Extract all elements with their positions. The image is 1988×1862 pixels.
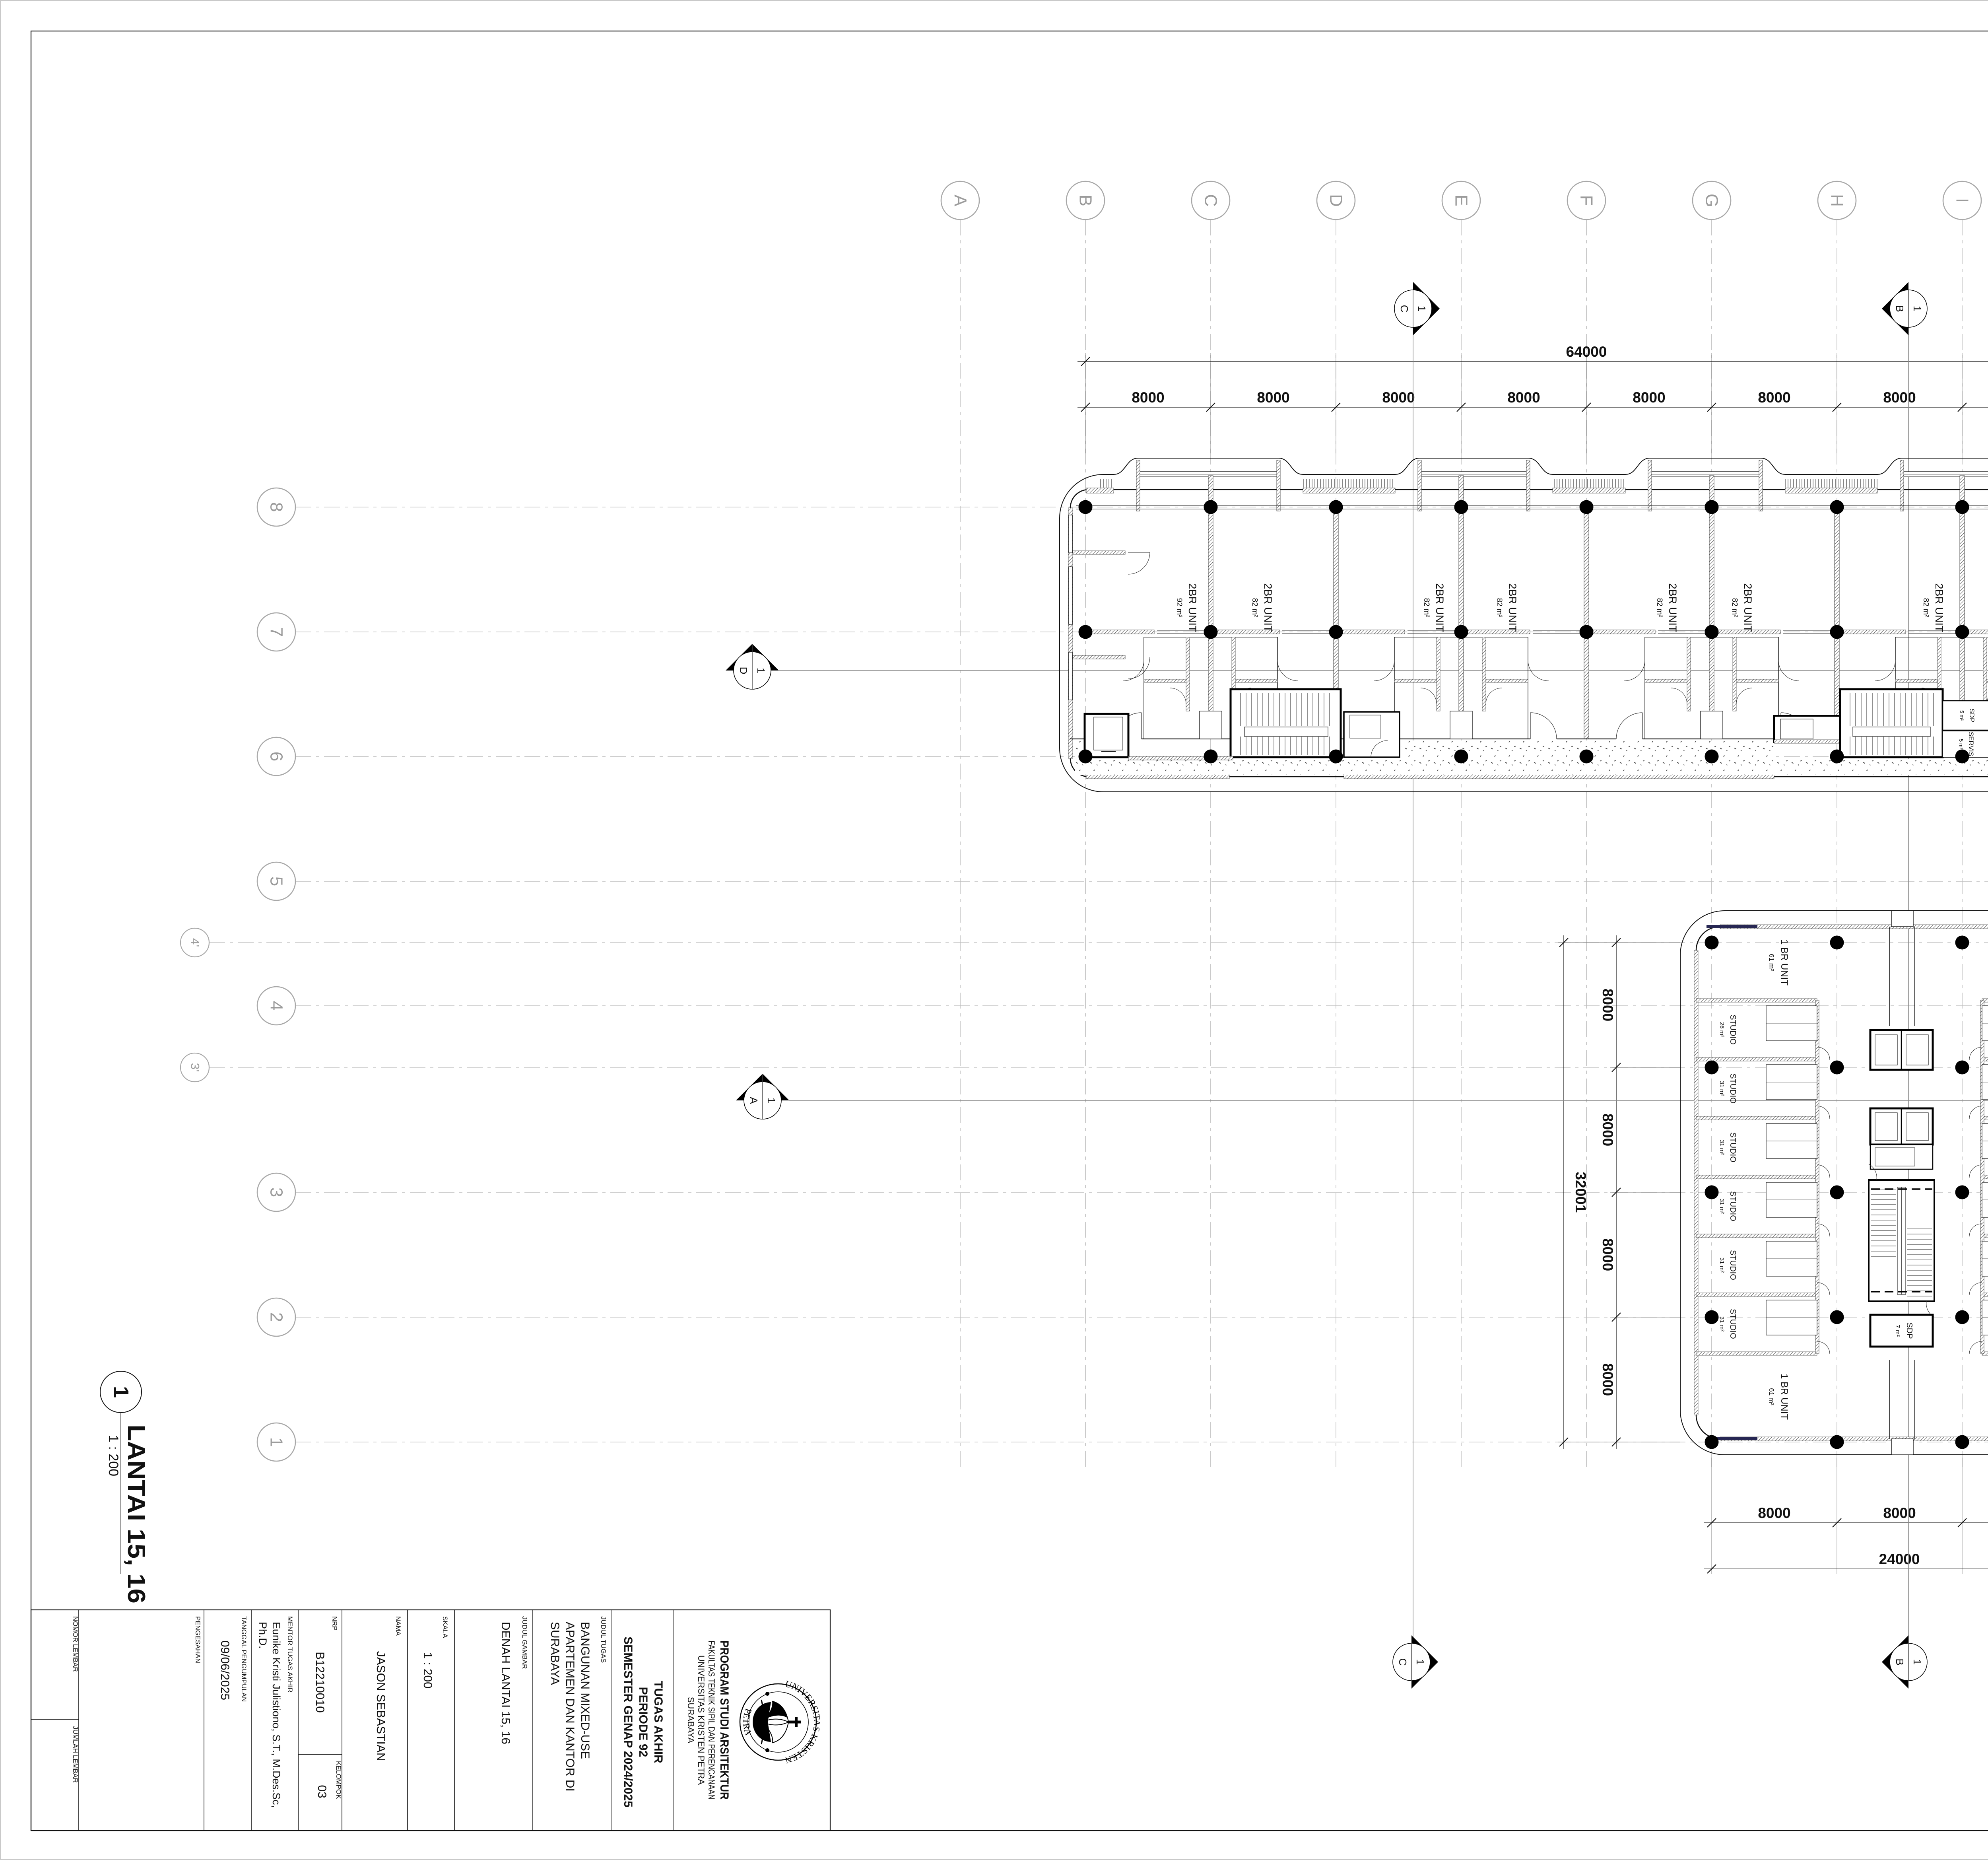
svg-text:8000: 8000 [1758, 1505, 1790, 1521]
svg-text:2BR UNIT: 2BR UNIT [1933, 583, 1945, 632]
svg-text:B: B [1894, 305, 1906, 312]
svg-text:09/06/2025: 09/06/2025 [218, 1640, 231, 1700]
svg-text:6: 6 [267, 752, 286, 761]
svg-text:82 m²: 82 m² [1422, 598, 1431, 618]
svg-text:STUDIO: STUDIO [1728, 1015, 1737, 1045]
svg-text:NAMA: NAMA [394, 1616, 402, 1636]
svg-text:SERVIS: SERVIS [1967, 732, 1975, 756]
svg-text:STUDIO: STUDIO [1728, 1132, 1737, 1162]
svg-text:8000: 8000 [1600, 989, 1616, 1021]
svg-text:1: 1 [765, 1098, 777, 1103]
svg-text:31 m²: 31 m² [1718, 1316, 1725, 1331]
svg-text:8000: 8000 [1507, 389, 1540, 406]
svg-text:DENAH LANTAI 15, 16: DENAH LANTAI 15, 16 [499, 1622, 512, 1744]
svg-text:4: 4 [267, 1001, 286, 1011]
svg-text:TUGAS AKHIR: TUGAS AKHIR [652, 1681, 665, 1763]
svg-text:1: 1 [109, 1386, 133, 1398]
svg-text:92 m²: 92 m² [1175, 598, 1183, 618]
svg-text:STUDIO: STUDIO [1728, 1309, 1737, 1339]
svg-text:8000: 8000 [1600, 1114, 1616, 1146]
svg-text:64000: 64000 [1566, 344, 1607, 360]
svg-text:03: 03 [315, 1785, 328, 1798]
svg-text:I: I [1953, 198, 1972, 203]
svg-text:3': 3' [188, 1063, 202, 1072]
svg-text:TANGGAL PENGUMPULAN: TANGGAL PENGUMPULAN [240, 1616, 248, 1702]
svg-text:82 m²: 82 m² [1922, 598, 1930, 618]
svg-text:7 m²: 7 m² [1894, 1325, 1901, 1337]
svg-text:A: A [951, 194, 970, 206]
svg-text:61 m²: 61 m² [1768, 954, 1775, 971]
svg-text:5 m²: 5 m² [1958, 739, 1964, 750]
svg-text:STUDIO: STUDIO [1728, 1191, 1737, 1221]
svg-text:H: H [1827, 194, 1847, 207]
svg-text:1 : 200: 1 : 200 [421, 1652, 434, 1689]
svg-text:SURABAYA: SURABAYA [548, 1622, 561, 1685]
svg-text:5: 5 [267, 877, 286, 886]
svg-text:8000: 8000 [1600, 1238, 1616, 1271]
svg-text:31 m²: 31 m² [1718, 1081, 1725, 1096]
svg-text:E: E [1452, 194, 1471, 206]
svg-text:STUDIO: STUDIO [1728, 1250, 1737, 1280]
svg-text:1: 1 [755, 668, 767, 673]
svg-text:SEMESTER GENAP 2024/2025: SEMESTER GENAP 2024/2025 [621, 1637, 635, 1808]
svg-text:Eunike Kristi Julistiono, S.T.: Eunike Kristi Julistiono, S.T., M.Des.Sc… [270, 1622, 282, 1808]
svg-text:B: B [1894, 1658, 1906, 1665]
svg-text:2BR UNIT: 2BR UNIT [1262, 583, 1274, 632]
svg-text:2: 2 [267, 1312, 286, 1322]
svg-text:APARTEMEN DAN KANTOR DI: APARTEMEN DAN KANTOR DI [563, 1622, 577, 1792]
svg-text:8000: 8000 [1758, 389, 1790, 406]
svg-text:82 m²: 82 m² [1730, 598, 1739, 618]
svg-text:8000: 8000 [1382, 389, 1415, 406]
svg-text:B: B [1076, 194, 1095, 206]
svg-text:B12210010: B12210010 [313, 1652, 326, 1713]
svg-text:8000: 8000 [1883, 389, 1916, 406]
svg-text:MENTOR TUGAS AKHIR: MENTOR TUGAS AKHIR [286, 1616, 294, 1693]
svg-text:82 m²: 82 m² [1655, 598, 1664, 618]
svg-text:1: 1 [1416, 306, 1428, 311]
svg-text:32001: 32001 [1573, 1172, 1589, 1213]
svg-text:BANGUNAN MIXED-USE: BANGUNAN MIXED-USE [579, 1622, 592, 1759]
svg-text:1: 1 [1911, 306, 1923, 311]
svg-text:F: F [1577, 195, 1596, 206]
svg-text:UNIVERSITAS KRISTEN PETRA: UNIVERSITAS KRISTEN PETRA [696, 1655, 706, 1785]
svg-text:3: 3 [267, 1188, 286, 1197]
svg-text:C: C [1397, 1658, 1409, 1666]
svg-text:1: 1 [267, 1437, 286, 1447]
svg-text:82 m²: 82 m² [1495, 598, 1503, 618]
svg-text:8000: 8000 [1883, 1505, 1916, 1521]
svg-text:1 : 200: 1 : 200 [106, 1435, 121, 1476]
svg-text:G: G [1702, 194, 1722, 207]
svg-text:C: C [1398, 305, 1410, 313]
svg-text:STUDIO: STUDIO [1728, 1073, 1737, 1104]
svg-text:A: A [748, 1097, 760, 1104]
svg-text:2BR UNIT: 2BR UNIT [1742, 583, 1754, 632]
svg-text:SDP: SDP [1905, 1322, 1914, 1339]
svg-text:1: 1 [1911, 1659, 1923, 1665]
svg-text:82 m²: 82 m² [1250, 598, 1259, 618]
svg-text:JUMLAH LEMBAR: JUMLAH LEMBAR [72, 1726, 79, 1783]
svg-text:JUDUL GAMBAR: JUDUL GAMBAR [521, 1616, 528, 1669]
svg-text:SURABAYA: SURABAYA [686, 1697, 696, 1743]
svg-text:5 m²: 5 m² [1959, 710, 1965, 721]
svg-text:PROGRAM STUDI ARSITEKTUR: PROGRAM STUDI ARSITEKTUR [718, 1640, 731, 1800]
svg-text:NOMOR LEMBAR: NOMOR LEMBAR [72, 1616, 79, 1672]
svg-text:4': 4' [188, 938, 202, 947]
svg-text:61 m²: 61 m² [1768, 1388, 1775, 1405]
svg-text:7: 7 [267, 627, 286, 637]
svg-text:Ph.D.: Ph.D. [257, 1622, 269, 1649]
svg-text:26 m²: 26 m² [1718, 1022, 1725, 1037]
svg-text:LANTAI 15, 16: LANTAI 15, 16 [122, 1425, 150, 1603]
svg-text:31 m²: 31 m² [1718, 1258, 1725, 1273]
svg-text:1 BR UNIT: 1 BR UNIT [1779, 1374, 1790, 1420]
svg-text:FAKULTAS TEKNIK SIPIL DAN PERE: FAKULTAS TEKNIK SIPIL DAN PERENCANAAN [707, 1640, 716, 1800]
svg-text:1 BR UNIT: 1 BR UNIT [1779, 939, 1790, 985]
svg-text:PENGESAHAN: PENGESAHAN [194, 1616, 202, 1663]
svg-text:D: D [1326, 194, 1346, 207]
svg-text:8000: 8000 [1633, 389, 1665, 406]
svg-text:PERIODE 92: PERIODE 92 [637, 1687, 650, 1757]
svg-text:31 m²: 31 m² [1718, 1199, 1725, 1214]
svg-text:2BR UNIT: 2BR UNIT [1434, 583, 1446, 632]
svg-text:KELOMPOK: KELOMPOK [335, 1761, 342, 1799]
svg-text:8000: 8000 [1600, 1363, 1616, 1396]
svg-text:SDP: SDP [1968, 709, 1976, 723]
svg-text:C: C [1201, 194, 1221, 207]
svg-text:2BR UNIT: 2BR UNIT [1667, 583, 1679, 632]
svg-text:24000: 24000 [1879, 1551, 1920, 1567]
svg-text:JASON SEBASTIAN: JASON SEBASTIAN [374, 1651, 387, 1761]
svg-text:NRP: NRP [331, 1616, 338, 1631]
svg-text:1: 1 [1414, 1659, 1426, 1665]
svg-text:8000: 8000 [1257, 389, 1289, 406]
svg-text:SKALA: SKALA [441, 1616, 449, 1638]
svg-text:2BR UNIT: 2BR UNIT [1186, 583, 1198, 632]
svg-text:31 m²: 31 m² [1718, 1140, 1725, 1155]
svg-text:8000: 8000 [1132, 389, 1164, 406]
svg-text:JUDUL TUGAS: JUDUL TUGAS [600, 1616, 607, 1663]
svg-text:8: 8 [267, 502, 286, 512]
svg-text:D: D [738, 667, 749, 674]
svg-text:2BR UNIT: 2BR UNIT [1507, 583, 1518, 632]
